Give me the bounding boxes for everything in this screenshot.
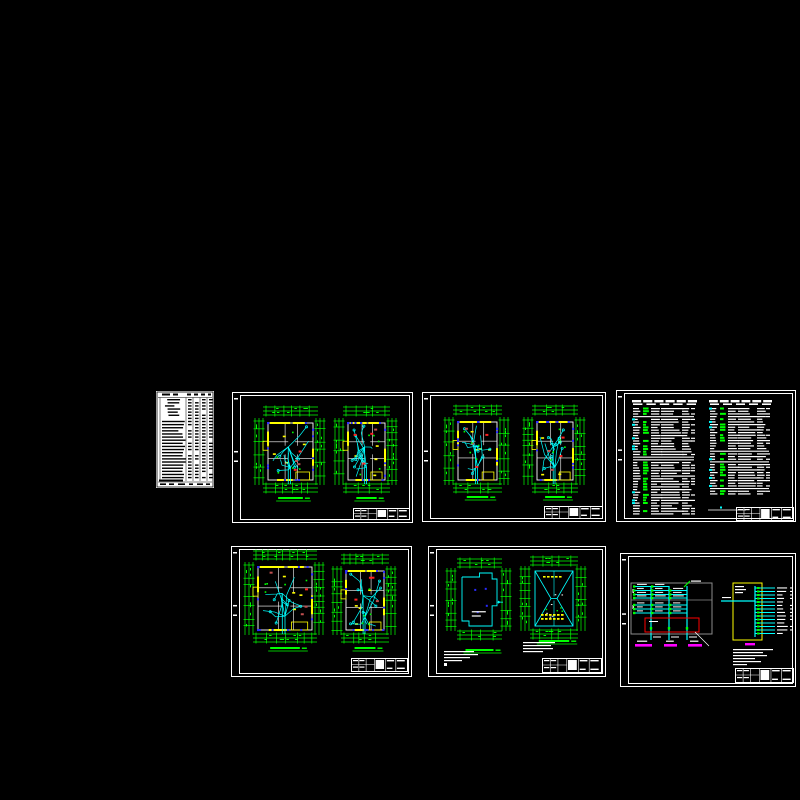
dimension-lines-horizontal	[530, 556, 578, 567]
dimension-lines-vertical	[315, 418, 326, 485]
note-text-lines	[733, 649, 773, 665]
legend-table	[709, 400, 772, 495]
note-text-lines	[444, 651, 478, 661]
attic-plan-outline	[462, 573, 503, 626]
plan-title	[268, 647, 308, 651]
dimension-lines-vertical	[244, 562, 255, 635]
title-block	[735, 668, 794, 683]
sheet-plan-and-roof	[428, 546, 606, 677]
title-block	[353, 508, 410, 520]
sheet-frame	[617, 391, 796, 522]
dimension-lines-horizontal	[453, 483, 502, 494]
dimension-lines-horizontal	[263, 406, 318, 417]
plan-title	[353, 647, 384, 651]
dimension-lines-horizontal	[530, 629, 578, 640]
title-block	[544, 506, 603, 519]
dimension-lines-vertical	[446, 568, 457, 631]
dimension-lines-horizontal	[457, 630, 502, 641]
plan-title	[465, 496, 496, 500]
title-block	[542, 658, 602, 673]
dimension-lines-vertical	[575, 417, 586, 485]
dimension-lines-horizontal	[263, 483, 318, 494]
dimension-lines-horizontal	[343, 406, 390, 417]
dimension-lines-vertical	[314, 562, 325, 635]
dimension-lines-vertical	[523, 417, 534, 485]
dimension-lines-vertical	[501, 568, 512, 631]
dimension-lines-horizontal	[253, 550, 317, 561]
plan-title	[543, 496, 573, 500]
sheet-legend-tables	[616, 390, 796, 522]
dimension-lines-horizontal	[532, 405, 578, 416]
dimension-lines-horizontal	[253, 633, 317, 644]
sheet-frame	[423, 393, 606, 522]
note-text-lines	[523, 642, 555, 652]
dimension-lines-horizontal	[341, 633, 389, 644]
floor-plan	[253, 566, 313, 634]
dimension-lines-vertical	[499, 417, 510, 485]
dimension-lines-vertical	[576, 566, 587, 631]
floor-panel-diagram	[721, 583, 793, 645]
drawing-list-table	[156, 391, 214, 488]
sheet-floor-plans-a	[232, 392, 413, 523]
dimension-lines-horizontal	[457, 558, 502, 569]
dimension-lines-vertical	[334, 418, 345, 485]
roof-plan	[535, 571, 573, 626]
cad-preview-canvas	[0, 0, 800, 800]
dimension-lines-horizontal	[341, 554, 389, 565]
distribution-panel-diagram	[631, 581, 712, 647]
title-block	[351, 658, 408, 672]
floor-plan	[263, 422, 314, 484]
sheet-system-diagram	[620, 553, 796, 687]
dimension-lines-horizontal	[343, 483, 390, 494]
dimension-lines-vertical	[332, 566, 343, 635]
floor-plan	[341, 570, 385, 634]
floor-plan	[532, 421, 574, 484]
floor-plan	[343, 422, 386, 484]
plan-title	[354, 497, 384, 501]
sheet-drawing-list	[156, 391, 214, 488]
dimension-lines-vertical	[386, 566, 397, 635]
dimension-lines-vertical	[444, 417, 455, 485]
legend-table	[632, 400, 697, 515]
dimension-lines-vertical	[387, 418, 398, 485]
dimension-lines-horizontal	[453, 405, 502, 416]
sheet-floor-plans-c	[231, 546, 412, 677]
sheet-floor-plans-b	[422, 392, 606, 522]
note-text-lines	[735, 586, 746, 593]
plan-title	[276, 497, 311, 501]
dimension-lines-horizontal	[532, 483, 578, 494]
dimension-lines-vertical	[520, 566, 531, 631]
dimension-lines-vertical	[254, 418, 265, 485]
floor-plan	[453, 421, 498, 484]
